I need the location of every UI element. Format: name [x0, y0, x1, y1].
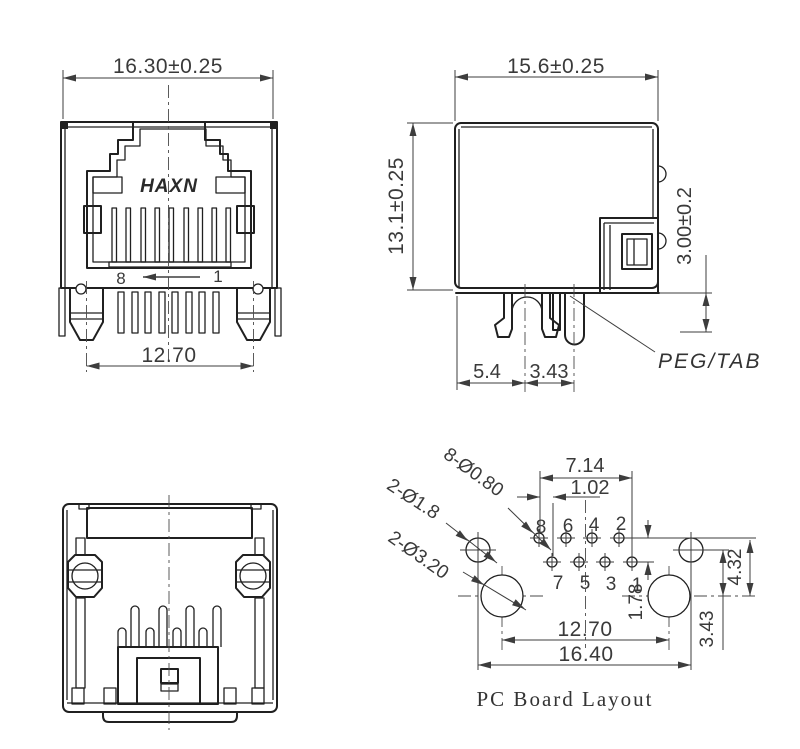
peg-hole-right [648, 575, 690, 617]
contact-comb [109, 208, 231, 267]
front-pin1-label: 1 [213, 267, 222, 286]
side-peg [565, 293, 584, 345]
front-peg-spacing-dimension: 12.70 [87, 344, 254, 370]
bottom-peg-left [68, 538, 102, 688]
side-peg-length-dimension: 3.00±0.2 [660, 187, 712, 332]
bottom-pins [118, 606, 221, 647]
side-height-dimension: 13.1±0.25 [385, 123, 453, 290]
pcb-pin4-label: 4 [589, 515, 600, 536]
side-bump-upper [658, 166, 666, 182]
front-peg-spacing-text: 12.70 [141, 344, 196, 367]
side-bump-lower [658, 233, 666, 249]
pcb-pin5-label: 5 [580, 573, 591, 594]
pcb-pin6-label: 6 [563, 516, 574, 537]
pcb-pin-offset-text: 1.02 [571, 477, 610, 499]
bottom-center-block [118, 647, 218, 704]
front-pin8-label: 8 [116, 269, 125, 288]
front-view: 16.30±0.25 HAXN [59, 55, 281, 372]
bottom-view [63, 495, 277, 730]
side-snap-feet [495, 293, 584, 345]
side-height-dim-text: 13.1±0.25 [385, 157, 408, 255]
bottom-face-band [87, 508, 252, 538]
pcb-shield-spacing-dimension: 16.40 [478, 643, 691, 669]
opening-shoulder-left [93, 177, 122, 193]
corner-mark-left [61, 122, 68, 129]
pcb-layout-title: PC Board Layout [477, 687, 654, 711]
side-skirt-left [59, 288, 65, 336]
side-depth-dimension: 15.6±0.25 [455, 55, 658, 121]
pcb-shield-spacing-text: 16.40 [558, 643, 613, 666]
side-skirt-right [275, 288, 281, 336]
pcb-pin-span-text: 7.14 [566, 455, 605, 477]
front-pin-numbering: 8 1 [116, 267, 222, 288]
pcb-peg-holes-callout-text: 2-Ø3.20 [384, 527, 452, 584]
pcb-pin2-label: 2 [616, 514, 627, 535]
peg-tab-callout: PEG/TAB [570, 296, 761, 373]
opening-shoulder-right [216, 177, 245, 193]
corner-mark-right [270, 122, 277, 129]
pcb-peg-spacing-text: 12.70 [557, 618, 612, 641]
side-depth-dim-text: 15.6±0.25 [507, 55, 605, 78]
pcb-shield-drop-text: 4.32 [725, 549, 746, 586]
side-peg-offset-text: 5.4 [473, 361, 501, 383]
side-peg-pitch-text: 3.43 [530, 361, 569, 383]
pcb-pin7-label: 7 [553, 573, 564, 594]
technical-drawing: 16.30±0.25 HAXN [0, 0, 800, 749]
pcb-pin-holes-callout-text: 8-Ø0.80 [439, 444, 507, 501]
peg-tab-text: PEG/TAB [658, 350, 761, 373]
pcb-shield-holes-callout-text: 2-Ø1.8 [383, 475, 443, 524]
side-latch-housing [600, 218, 658, 293]
side-view: 15.6±0.25 13.1±0.25 [385, 55, 761, 392]
pcb-shield-peg-text: 3.43 [697, 611, 718, 648]
pcb-shield-drop-dimension: 4.32 [725, 540, 754, 596]
side-peg-position-dimensions: 5.4 3.43 [457, 296, 574, 390]
bottom-tab [103, 712, 237, 722]
pcb-pin8-label: 8 [536, 517, 547, 538]
pcb-peg-spacing-dimension: 12.70 [502, 618, 669, 644]
front-width-dim-text: 16.30±0.25 [113, 55, 223, 78]
pcb-row-pitch-text: 1.78 [626, 584, 647, 621]
pcb-layout: 8 6 4 2 7 5 3 1 7.14 1.02 [383, 444, 758, 711]
side-peg-length-text: 3.00±0.2 [674, 187, 696, 265]
pcb-pin-holes-callout: 8-Ø0.80 [439, 444, 553, 553]
pcb-pin3-label: 3 [606, 574, 617, 595]
bottom-body-outline [63, 504, 277, 712]
brand-text: HAXN [140, 176, 198, 197]
front-width-dimension: 16.30±0.25 [63, 55, 273, 119]
bottom-peg-right [236, 538, 270, 688]
